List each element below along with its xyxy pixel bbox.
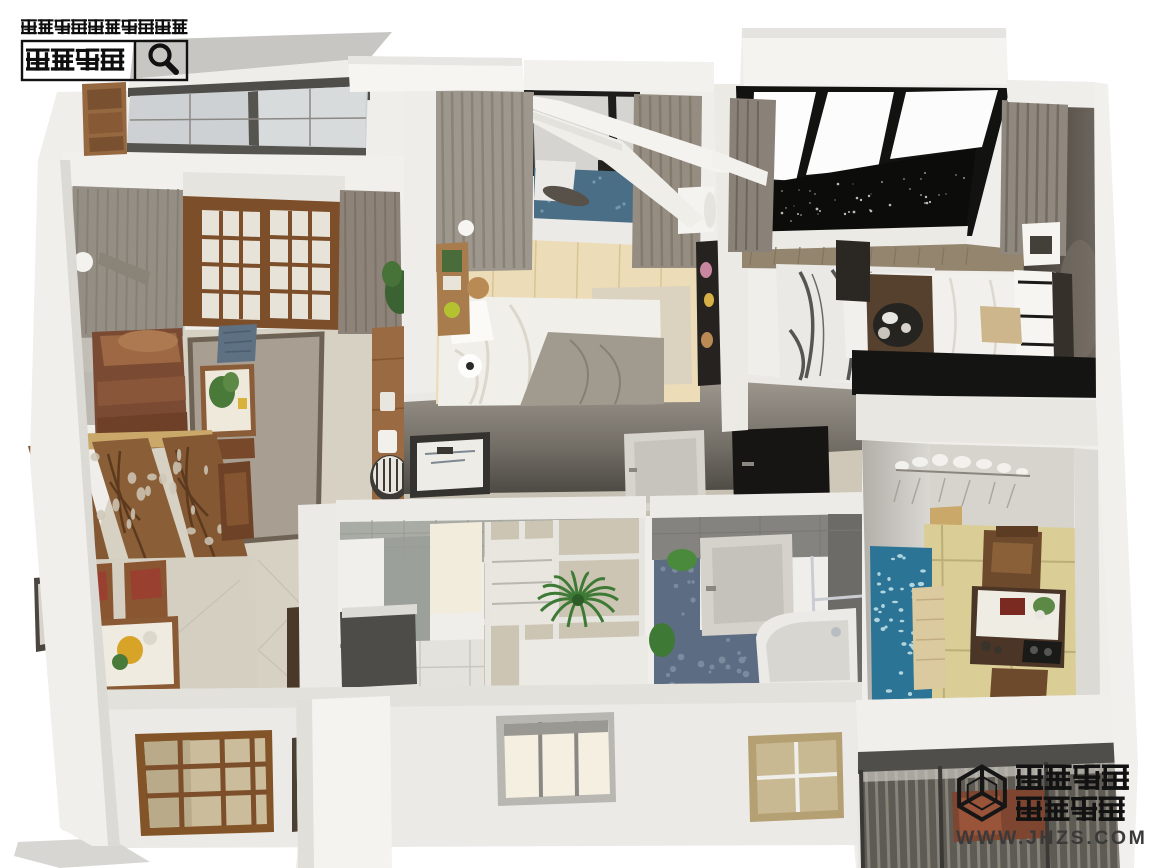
svg-text:WWW.JHZS.COM: WWW.JHZS.COM [956, 827, 1148, 849]
